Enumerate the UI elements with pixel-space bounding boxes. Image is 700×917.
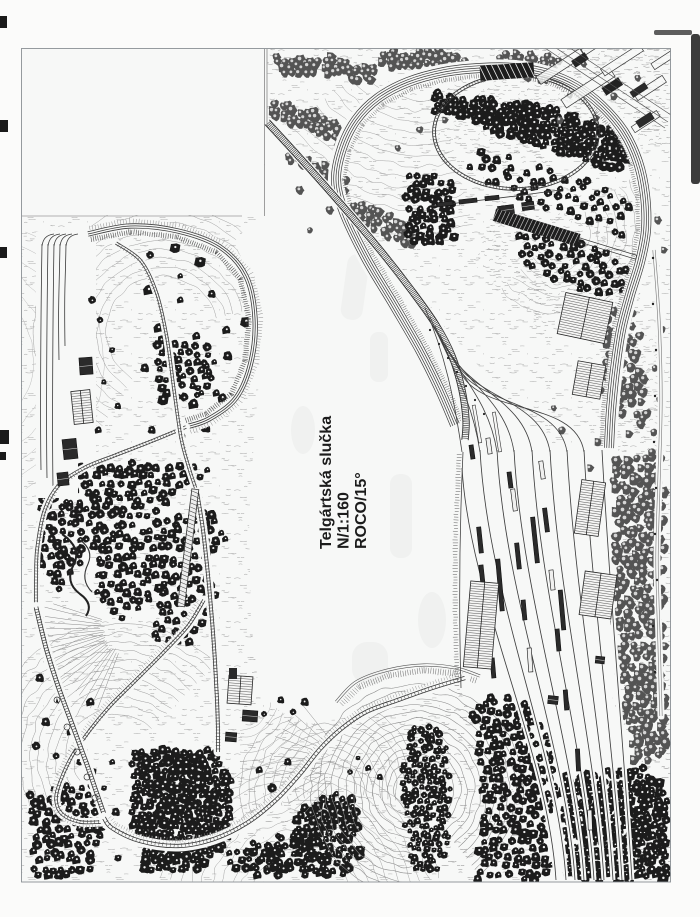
svg-text:Telgártská slučka: Telgártská slučka [318,416,335,549]
svg-text:N/1:160: N/1:160 [336,492,353,549]
svg-text:ROCO/15°: ROCO/15° [353,472,370,549]
